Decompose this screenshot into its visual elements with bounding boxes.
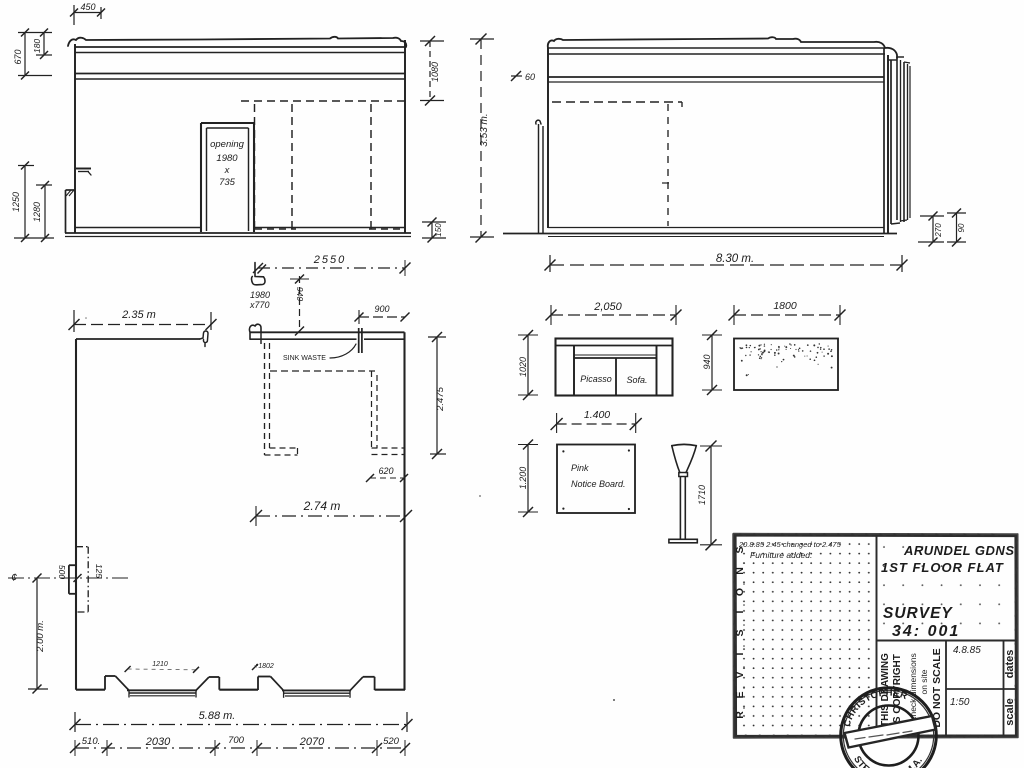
svg-text:x770: x770	[249, 300, 270, 310]
svg-text:125: 125	[94, 564, 104, 578]
svg-text:90: 90	[957, 223, 966, 232]
svg-text:I: I	[734, 610, 746, 613]
svg-text:2550: 2550	[313, 254, 346, 266]
svg-text:2.475: 2.475	[435, 386, 446, 411]
svg-text:S: S	[734, 629, 746, 636]
svg-text:¢: ¢	[11, 572, 17, 584]
svg-text:735: 735	[219, 177, 236, 188]
svg-text:Notice Board.: Notice Board.	[571, 479, 626, 489]
svg-text:2070: 2070	[299, 736, 325, 748]
svg-text:1280: 1280	[32, 202, 42, 222]
svg-text:900: 900	[374, 304, 389, 314]
svg-text:3.53 m.: 3.53 m.	[479, 113, 490, 146]
svg-text:2,050: 2,050	[593, 301, 622, 313]
svg-text:940: 940	[702, 354, 712, 369]
svg-text:520: 520	[383, 736, 400, 747]
svg-text:1ST FLOOR FLAT: 1ST FLOOR FLAT	[881, 560, 1004, 575]
svg-text:450: 450	[80, 2, 95, 12]
svg-text:180: 180	[32, 39, 42, 53]
svg-text:Sofa.: Sofa.	[626, 375, 647, 385]
svg-text:2030: 2030	[145, 736, 171, 748]
svg-text:2.35 m: 2.35 m	[121, 309, 156, 321]
svg-text:1.400: 1.400	[584, 409, 610, 421]
svg-text:SINK WASTE: SINK WASTE	[283, 355, 326, 362]
svg-text:34: 001: 34: 001	[892, 623, 960, 640]
svg-text:R: R	[734, 711, 746, 719]
svg-text:1980: 1980	[216, 153, 238, 164]
svg-text:opening: opening	[210, 139, 245, 150]
svg-text:SURVEY: SURVEY	[883, 605, 953, 622]
svg-text:check dimensions: check dimensions	[908, 653, 918, 721]
svg-text:1210: 1210	[152, 661, 168, 668]
svg-text:I: I	[734, 652, 746, 655]
svg-text:670: 670	[13, 49, 23, 64]
svg-text:2.00 m.: 2.00 m.	[35, 620, 46, 653]
svg-text:dates: dates	[1004, 650, 1016, 679]
svg-text:270: 270	[934, 223, 943, 238]
svg-text:1980: 1980	[250, 290, 270, 300]
svg-text:150: 150	[434, 223, 443, 237]
svg-text:Picasso: Picasso	[580, 374, 612, 384]
svg-text:5.88 m.: 5.88 m.	[199, 710, 236, 722]
svg-text:V: V	[734, 671, 746, 678]
svg-text:500: 500	[57, 565, 67, 579]
svg-text:1250: 1250	[11, 192, 21, 212]
svg-text:on site: on site	[919, 669, 929, 694]
svg-text:8.30 m.: 8.30 m.	[716, 253, 754, 265]
svg-text:E: E	[734, 691, 746, 698]
svg-text:2.74 m: 2.74 m	[303, 499, 341, 513]
svg-text:1020: 1020	[518, 357, 528, 377]
svg-text:O: O	[734, 588, 746, 596]
svg-text:Furniture added.: Furniture added.	[750, 550, 812, 560]
svg-text:scale: scale	[1004, 698, 1016, 726]
svg-text:1710: 1710	[697, 485, 707, 505]
svg-text:1800: 1800	[773, 300, 797, 312]
svg-text:1:50: 1:50	[950, 697, 970, 708]
svg-text:ARUNDEL GDNS: ARUNDEL GDNS	[903, 543, 1015, 558]
svg-text:1080: 1080	[430, 62, 440, 82]
svg-text:N: N	[734, 567, 746, 575]
svg-text:940: 940	[295, 287, 305, 301]
svg-text:1.200: 1.200	[518, 467, 528, 490]
svg-text:510.: 510.	[82, 736, 101, 747]
svg-text:700: 700	[228, 735, 245, 746]
svg-text:Pink: Pink	[571, 463, 589, 473]
svg-text:20.8.85 2.45 changed to 2.475: 20.8.85 2.45 changed to 2.475	[738, 540, 842, 549]
svg-text:620: 620	[378, 466, 393, 476]
svg-text:60: 60	[525, 72, 535, 82]
svg-text:4.8.85: 4.8.85	[953, 645, 981, 656]
